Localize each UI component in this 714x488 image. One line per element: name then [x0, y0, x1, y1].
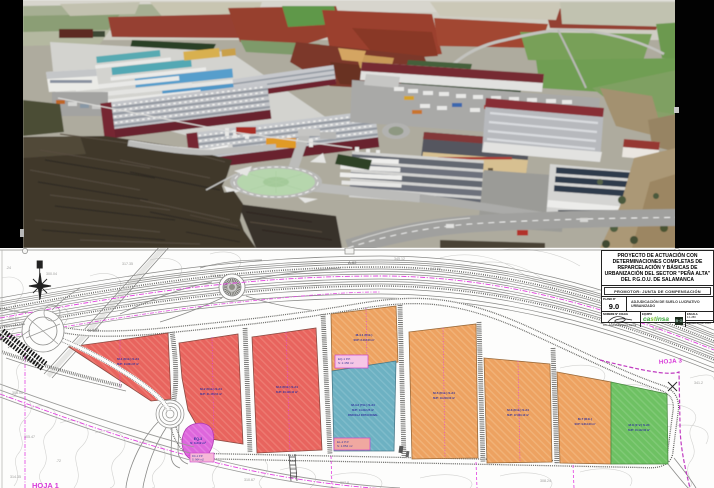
svg-text:317.35: 317.35 [122, 262, 133, 266]
svg-text:SUP: 24.831,07 m²: SUP: 24.831,07 m² [117, 362, 139, 366]
svg-text:.24: .24 [6, 266, 11, 270]
svg-text:M-4.2 (T.E.) S-24: M-4.2 (T.E.) S-24 [351, 403, 375, 407]
svg-text:SUP: 10.112,00 m²: SUP: 10.112,00 m² [628, 428, 650, 432]
svg-text:M-1 (R.E.) S-24: M-1 (R.E.) S-24 [117, 357, 139, 361]
svg-text:.72: .72 [56, 459, 61, 463]
svg-text:M-8 (Z.V.) S-24: M-8 (Z.V.) S-24 [628, 423, 649, 427]
svg-text:A-62: A-62 [348, 260, 357, 265]
svg-text:M-5 (R.E.) S-24: M-5 (R.E.) S-24 [433, 391, 455, 395]
svg-text:PARCELA DOTACIONAL: PARCELA DOTACIONAL [348, 413, 378, 417]
svg-text:305.47: 305.47 [24, 435, 35, 439]
svg-text:SUP: 9.614,00 m²: SUP: 9.614,00 m² [575, 422, 596, 426]
svg-text:S: 3.212 m²: S: 3.212 m² [190, 441, 206, 445]
svg-text:S: 1.854 m²: S: 1.854 m² [337, 444, 353, 448]
svg-text:M-6 (R.E.) S-24: M-6 (R.E.) S-24 [507, 408, 529, 412]
svg-text:300.04: 300.04 [46, 272, 57, 276]
svg-text:SUP: 21.470,53 m²: SUP: 21.470,53 m² [200, 392, 222, 396]
svg-text:SUP: 19.218,00 m²: SUP: 19.218,00 m² [433, 396, 455, 400]
svg-text:341.2: 341.2 [694, 381, 703, 385]
svg-text:HOJA 1: HOJA 1 [32, 481, 59, 488]
svg-text:DC-1 P.P.: DC-1 P.P. [192, 454, 203, 458]
svg-text:M-4.1 (R.E.): M-4.1 (R.E.) [356, 333, 373, 337]
svg-text:308.24: 308.24 [540, 479, 551, 483]
svg-text:SUP: 17.840,10 m²: SUP: 17.840,10 m² [507, 413, 529, 417]
svg-text:S: 964 m2: S: 964 m2 [192, 458, 204, 462]
svg-text:S: 2.456 m²: S: 2.456 m² [338, 361, 354, 365]
svg-text:N-620: N-620 [88, 327, 100, 333]
svg-text:SUP: 14.312,25 m²: SUP: 14.312,25 m² [352, 408, 374, 412]
svg-text:M-7 (R.E.): M-7 (R.E.) [578, 417, 592, 421]
svg-text:SUP: 8.412,00 m²: SUP: 8.412,00 m² [354, 338, 375, 342]
svg-text:310.67: 310.67 [244, 478, 255, 482]
svg-text:M-2 (R.E.) S-24: M-2 (R.E.) S-24 [200, 387, 222, 391]
svg-text:M-3 (R.E.) S-24: M-3 (R.E.) S-24 [276, 385, 298, 389]
svg-text:SUP: 23.118,42 m²: SUP: 23.118,42 m² [276, 390, 298, 394]
svg-text:314.35: 314.35 [10, 475, 21, 479]
